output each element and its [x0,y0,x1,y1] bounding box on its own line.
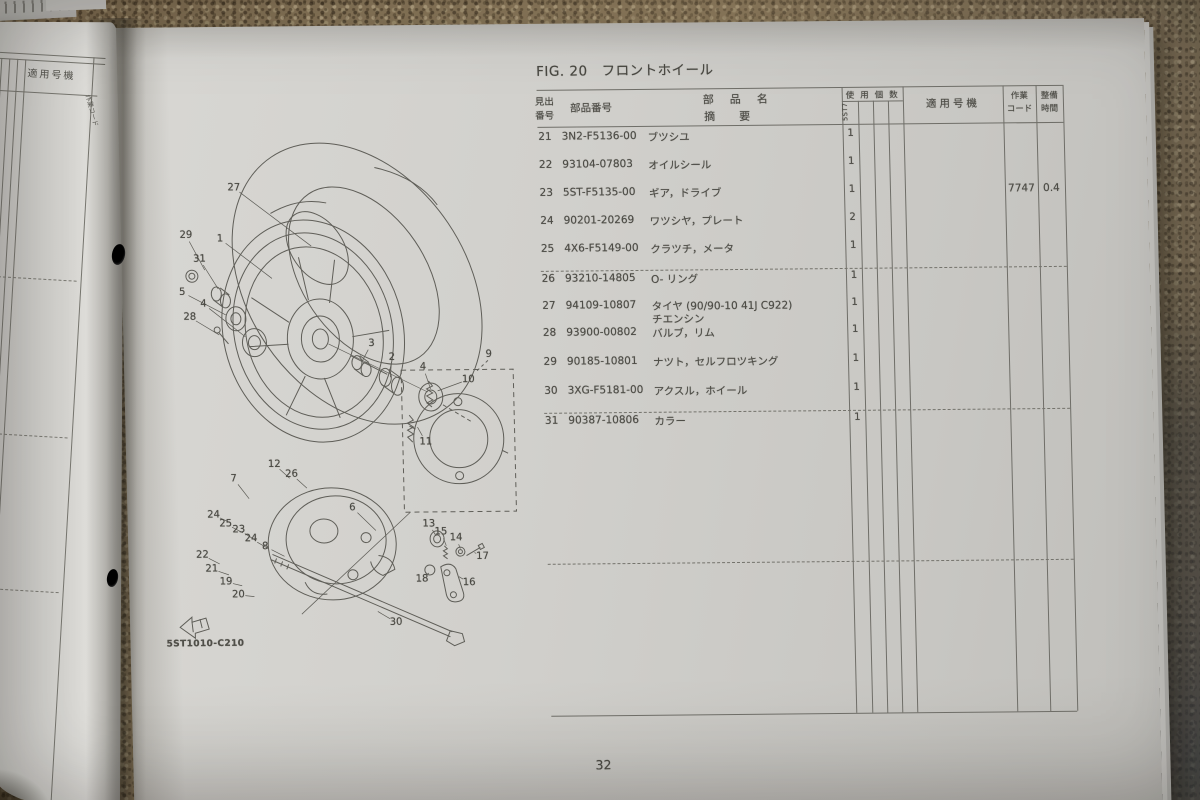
diagram-callout: 4 [420,361,427,372]
left-page-table: 適用号機 作業コード [0,48,124,800]
diagram-callout: 29 [179,230,192,241]
diagram-callout: 2 [389,352,396,363]
table-line [0,58,10,800]
table-cell: 23 [527,187,553,199]
header-work-code: コード [1003,102,1036,114]
table-cell: 4X6-F5149-00 [564,242,639,255]
table-cell: 28 [530,327,556,339]
header-applicable-model: 適用号機 [903,95,1003,111]
diagram-callout: 31 [193,254,206,265]
dashed-row-separator [0,587,59,593]
table-cell: 25 [528,243,554,255]
header-ref-no: 番号 [535,108,554,122]
diagram-callout: 19 [220,576,233,587]
header-service-time: 時間 [1036,102,1063,114]
table-cell: 3XG-F5181-00 [568,384,644,397]
table-cell: 1 [843,156,859,167]
page-corner-shadow [0,768,52,800]
photo-scene: 適用号機 作業コード FIG. 20 フロントホイール 見出 番号 [0,0,1200,800]
table-cell: 1 [846,297,862,308]
table-line [0,58,105,65]
catalog-page: FIG. 20 フロントホイール 見出 番号 部品番号 部品名 摘要 使用個数 [116,18,1163,800]
header-service-time: 整備 [1036,89,1063,101]
table-cell: 1 [843,128,859,139]
table-cell: 1 [846,270,862,281]
table-cell: アクスル，ホイール [654,383,748,399]
table-cell: 26 [529,273,555,285]
diagram-callout: 16 [463,577,476,588]
diagram-callout: 28 [183,312,196,323]
diagram-callout: 30 [390,617,403,628]
diagram-callout: 18 [416,573,429,584]
table-cell: 5ST-F5135-00 [563,186,636,199]
table-cell: 1 [844,184,860,195]
table-cell: 1 [849,412,865,423]
table-cell: 22 [526,159,552,171]
table-cell: O- リング [651,271,699,286]
table-cell: 90387-10806 [568,414,639,427]
table-cell: 90185-10801 [567,355,638,368]
diagram-callout: 26 [285,469,298,480]
diagram-callout: 17 [476,551,489,562]
table-cell: 94109-10807 [566,299,637,312]
table-cell: 93104-07803 [562,158,633,171]
diagram-callout: 10 [462,374,475,385]
table-cell: 7747 [1005,182,1038,194]
diagram-callout: 3 [368,338,375,349]
table-cell: 3N2-F5136-00 [562,130,637,143]
table-line [537,85,1063,91]
table-cell: クラツチ，メータ [650,241,734,257]
table-line [0,59,26,800]
table-cell: 27 [530,300,556,312]
header-qty: 使用個数 [846,88,904,101]
axle-drawing [270,553,464,648]
diagram-callout: 21 [205,563,218,574]
table-cell: 93210-14805 [565,272,636,285]
header-part-no: 部品番号 [570,100,612,115]
diagram-callout: 20 [232,589,245,600]
header-work-code: 作業 [1003,89,1036,101]
diagram-code: 5ST1010-C210 [166,639,244,650]
model-code-rotated: 5ST7 [841,103,849,121]
table-cell: オイルシール [648,157,711,173]
page-number: 32 [581,757,625,772]
table-cell: 29 [531,356,557,368]
diagram-callout: 12 [268,459,281,470]
dashed-row-separator [0,432,68,438]
table-line [551,711,1077,717]
table-cell: 21 [526,131,552,143]
diagram-callout: 22 [196,550,209,561]
diagram-callout: 24 [207,509,220,520]
table-cell: ギア，ドライブ [649,185,722,201]
left-page: 適用号機 作業コード [0,22,124,800]
header-ref-no: 見出 [535,94,554,108]
diagram-callout: 9 [485,349,492,360]
diagram-callout: 24 [245,533,258,544]
diagram-callout: 25 [219,518,232,529]
left-page-column-header: 適用号機 [27,65,76,83]
diagram-callout: 27 [227,182,240,193]
table-cell: 1 [847,324,863,335]
table-cell: バルブ，リム [652,325,715,341]
brake-plate-drawing [267,487,398,600]
diagram-callout: 14 [450,532,463,543]
diagram-callout: 23 [232,524,245,535]
diagram-callout: 8 [262,541,269,552]
diagram-callout: 11 [419,436,432,447]
table-cell: ナツト，セルフロツキング [653,354,779,370]
table-cell: 2 [844,212,860,223]
diagram-callout: 4 [200,299,207,310]
figure-title: FIG. 20 フロントホイール [536,58,714,80]
table-cell: 1 [845,240,861,251]
table-cell: 1 [848,382,864,393]
dashed-row-separator [548,559,1074,565]
diagram-callout: 7 [230,473,237,484]
table-cell: 93900-00802 [566,326,637,339]
diagram-callout: 15 [434,526,447,537]
diagram-callout: 13 [422,518,435,529]
table-cell: 31 [532,415,558,427]
diagram-callout: 6 [349,502,356,513]
table-cell: 1 [848,353,864,364]
table-cell: カラー [654,413,686,428]
header-part-name: 部品名 [703,91,784,108]
table-cell: 0.4 [1038,182,1065,194]
table-cell: ワツシヤ，プレート [649,213,743,229]
left-page-edge-text: 作業コード [84,93,102,127]
diagram-callout: 5 [179,287,186,298]
header-remarks: 摘要 [704,108,774,125]
fwd-arrow-icon [180,617,209,638]
table-cell: ブツシユ [648,129,690,144]
diagram-callout: 1 [217,233,224,244]
table-cell: 24 [528,215,554,227]
table-cell: 30 [532,385,558,397]
table-cell: 90201-20269 [563,214,634,227]
table-line [50,57,95,800]
